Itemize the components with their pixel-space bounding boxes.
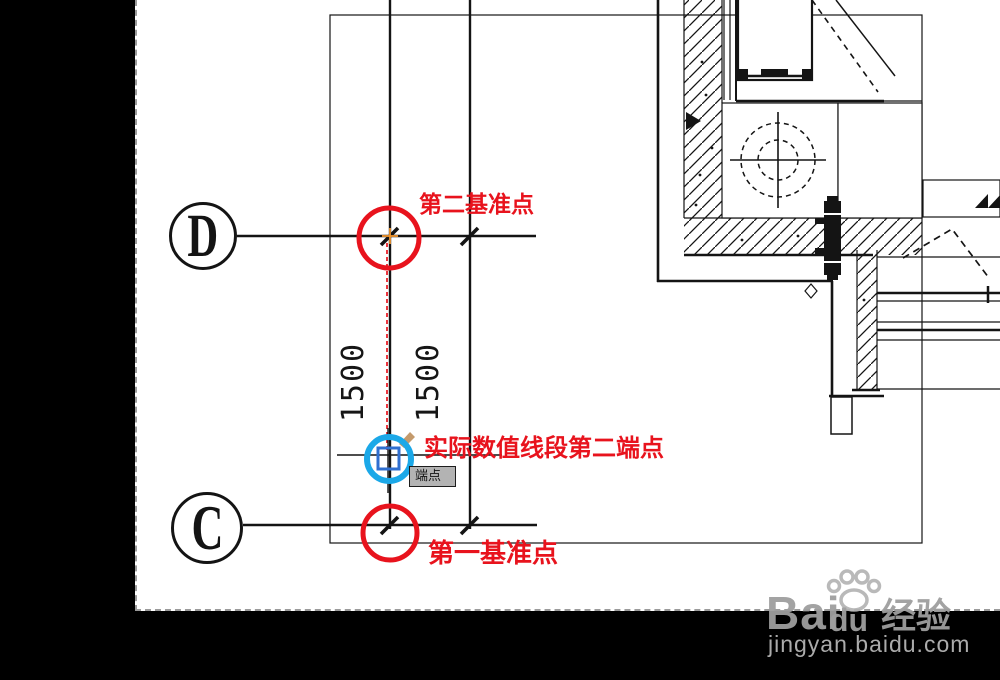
- label-first-datum-point: 第一基准点: [428, 539, 558, 569]
- watermark-brand-cjk: 经验: [881, 599, 951, 634]
- dimension-value-right: 1500: [413, 334, 445, 430]
- drawing-canvas[interactable]: [135, 0, 1000, 611]
- watermark-url: jingyan.baidu.com: [768, 633, 970, 656]
- dimension-value-left: 1500: [338, 334, 370, 430]
- grid-bubble-d-label: D: [188, 201, 219, 271]
- grid-bubble-c: C: [171, 492, 243, 564]
- osnap-tooltip: 端点: [409, 466, 456, 487]
- label-second-datum-point: 第二基准点: [419, 191, 534, 217]
- grid-bubble-c-label: C: [191, 491, 223, 564]
- grid-bubble-d: D: [169, 202, 237, 270]
- label-second-endpoint: 实际数值线段第二端点: [424, 435, 664, 463]
- page: { "app": { "description": "CAD drawing s…: [0, 0, 1000, 680]
